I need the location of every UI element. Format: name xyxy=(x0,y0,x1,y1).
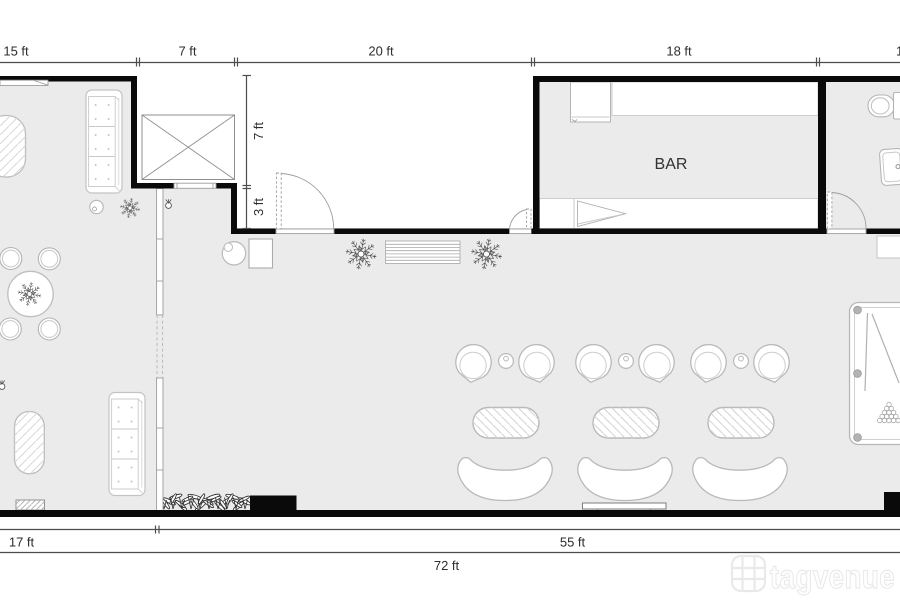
svg-text:3 ft: 3 ft xyxy=(251,198,266,216)
svg-text:18 ft: 18 ft xyxy=(666,44,692,59)
svg-text:7 ft: 7 ft xyxy=(178,44,196,59)
svg-text:72 ft: 72 ft xyxy=(434,558,460,573)
svg-text:20 ft: 20 ft xyxy=(368,44,394,59)
svg-text:17 ft: 17 ft xyxy=(9,535,35,550)
svg-text:7 ft: 7 ft xyxy=(251,122,266,140)
svg-text:BAR: BAR xyxy=(655,156,688,173)
svg-text:tagvenue: tagvenue xyxy=(770,558,895,595)
svg-text:15 ft: 15 ft xyxy=(3,44,29,59)
svg-text:11 ft: 11 ft xyxy=(896,44,900,59)
svg-text:55 ft: 55 ft xyxy=(560,535,586,550)
